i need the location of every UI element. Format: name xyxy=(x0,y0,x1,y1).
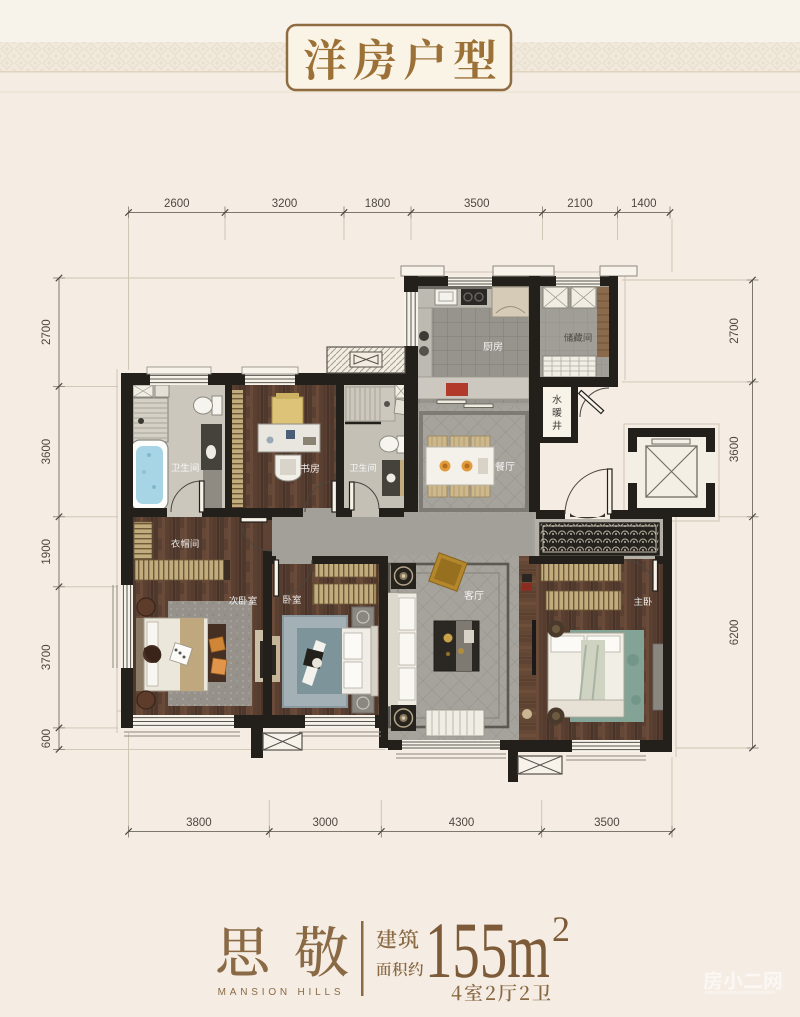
svg-text:3500: 3500 xyxy=(594,817,620,829)
svg-text:2700: 2700 xyxy=(41,319,53,345)
svg-text:3200: 3200 xyxy=(272,198,298,210)
svg-text:3800: 3800 xyxy=(186,817,212,829)
svg-text:1900: 1900 xyxy=(41,539,53,565)
svg-text:1800: 1800 xyxy=(365,198,391,210)
svg-text:4300: 4300 xyxy=(449,817,475,829)
svg-text:6200: 6200 xyxy=(729,620,741,646)
svg-text:2600: 2600 xyxy=(164,198,190,210)
svg-text:3700: 3700 xyxy=(41,645,53,671)
svg-text:1400: 1400 xyxy=(631,198,657,210)
svg-text:2700: 2700 xyxy=(729,318,741,344)
svg-text:MANSION HILLS: MANSION HILLS xyxy=(218,987,345,998)
svg-text:600: 600 xyxy=(41,729,53,748)
svg-text:3600: 3600 xyxy=(41,439,53,465)
svg-text:2100: 2100 xyxy=(567,198,593,210)
svg-text:3500: 3500 xyxy=(464,198,490,210)
svg-text:3000: 3000 xyxy=(313,817,339,829)
svg-text:3600: 3600 xyxy=(729,437,741,463)
